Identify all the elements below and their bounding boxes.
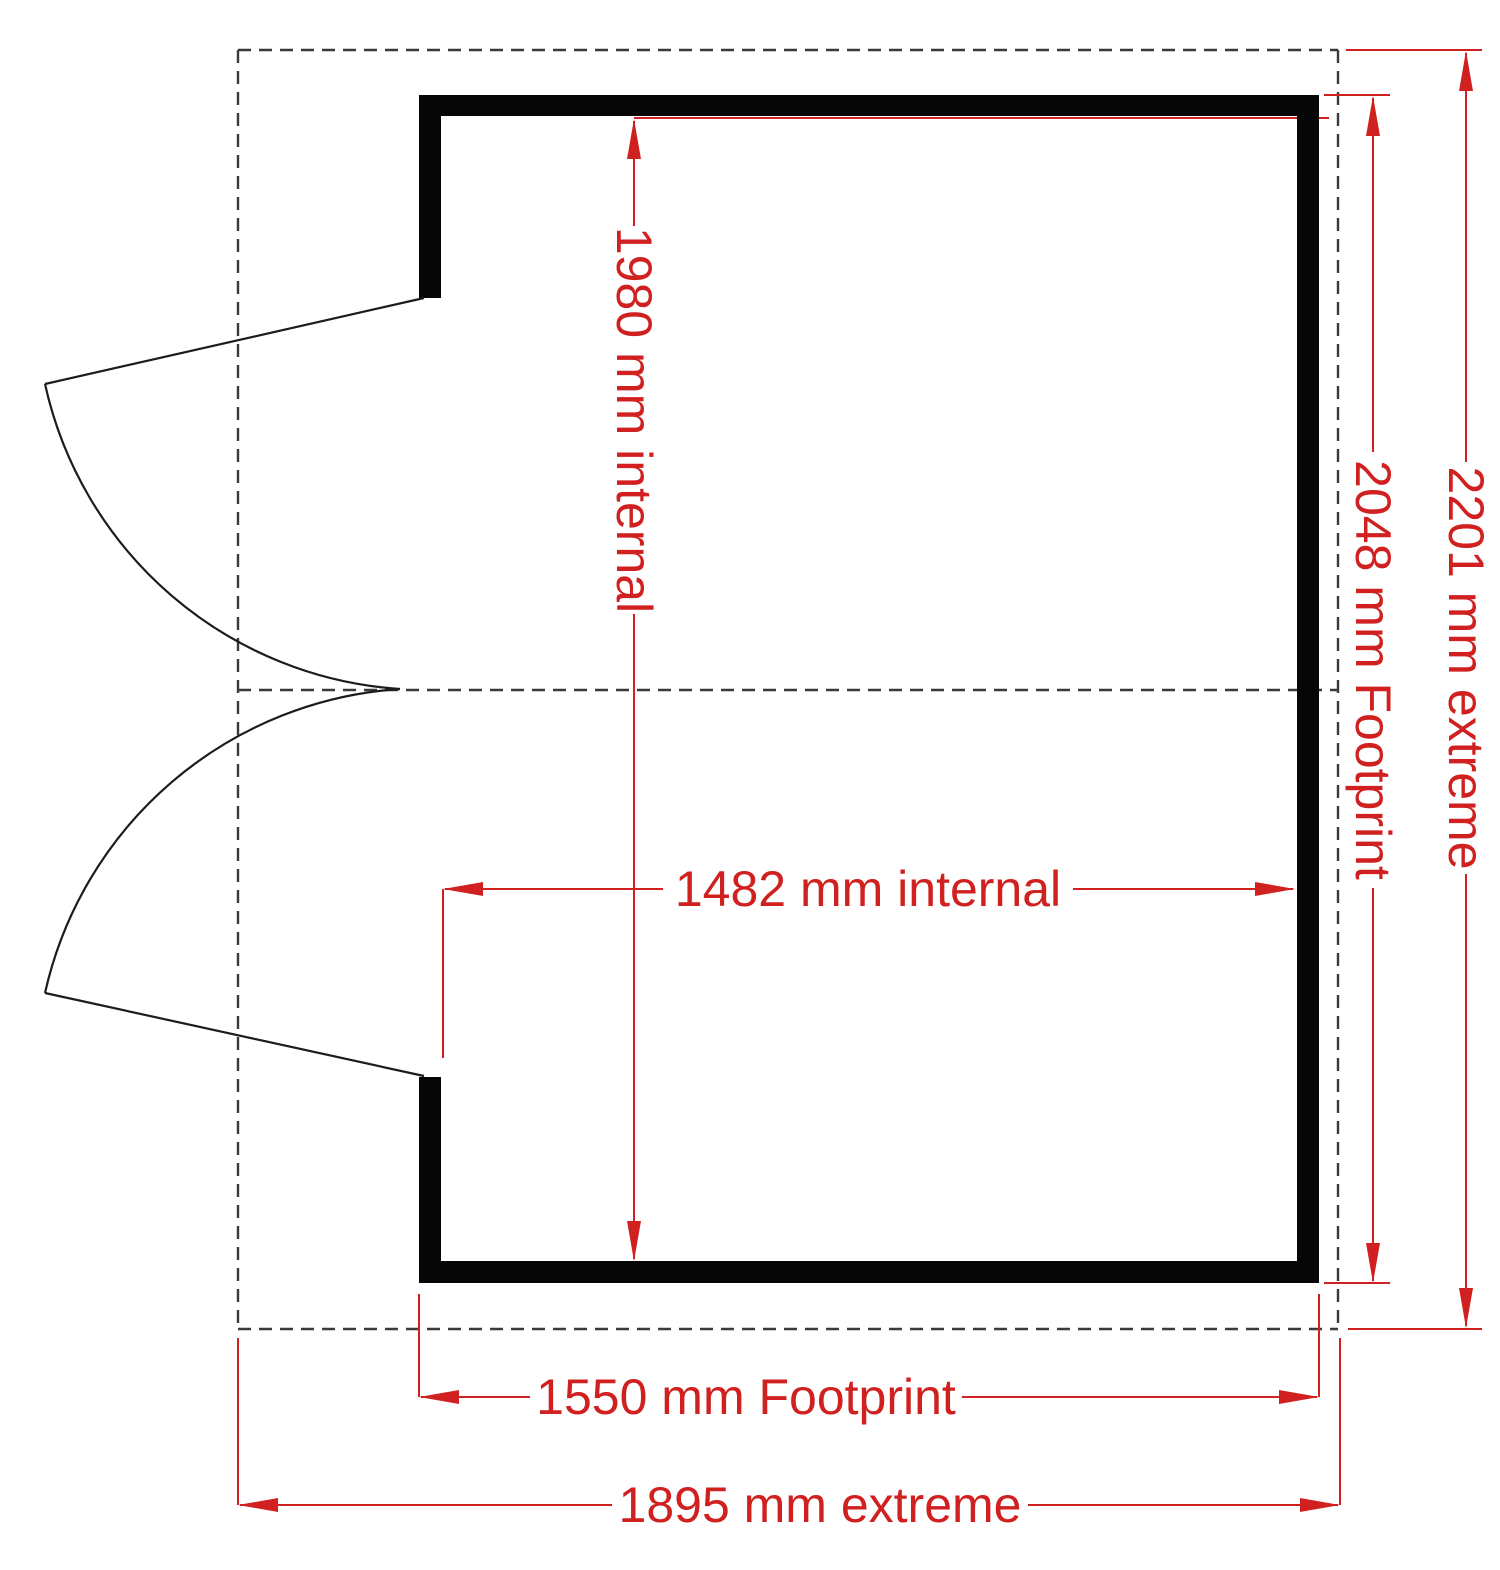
- arrow-down-icon: [627, 1221, 641, 1261]
- arrow-left-icon: [419, 1390, 459, 1404]
- arrow-up-icon: [627, 119, 641, 159]
- arrow-left-icon: [443, 882, 483, 896]
- wall-bottom: [419, 1261, 1319, 1283]
- wall-left-upper: [419, 95, 441, 298]
- wall-top: [419, 95, 1319, 116]
- wall-left-lower: [419, 1077, 441, 1283]
- door-swing-arc-upper: [45, 384, 400, 689]
- dim-label-footprint-depth: 2048 mm Footprint: [1345, 460, 1401, 880]
- dim-label-footprint-width: 1550 mm Footprint: [536, 1369, 956, 1425]
- arrow-left-icon: [238, 1498, 278, 1512]
- door-leaf-lower: [45, 993, 424, 1076]
- arrow-up-icon: [1366, 96, 1380, 136]
- dim-footprint-width: 1550 mm Footprint: [419, 1294, 1319, 1425]
- floor-plan-canvas: 1980 mm internal 1482 mm internal 2048 m…: [0, 0, 1500, 1570]
- dim-label-internal-depth: 1980 mm internal: [606, 227, 662, 613]
- double-doors: [45, 298, 424, 1076]
- door-swing-arc-lower: [45, 689, 400, 993]
- arrow-right-icon: [1300, 1498, 1340, 1512]
- dim-label-extreme-depth: 2201 mm extreme: [1438, 467, 1494, 870]
- wall-right: [1297, 95, 1319, 1283]
- dim-label-extreme-width: 1895 mm extreme: [619, 1477, 1022, 1533]
- door-leaf-upper: [45, 298, 424, 384]
- arrow-up-icon: [1459, 51, 1473, 91]
- extreme-envelope: [238, 50, 1338, 1329]
- dim-internal-depth: 1980 mm internal: [606, 118, 1329, 1261]
- arrow-right-icon: [1255, 882, 1295, 896]
- dim-label-internal-width: 1482 mm internal: [675, 861, 1061, 917]
- floor-plan-page: 1980 mm internal 1482 mm internal 2048 m…: [0, 0, 1500, 1570]
- arrow-down-icon: [1459, 1288, 1473, 1328]
- dim-internal-width: 1482 mm internal: [443, 861, 1295, 1058]
- arrow-down-icon: [1366, 1243, 1380, 1283]
- arrow-right-icon: [1279, 1390, 1319, 1404]
- dim-extreme-width: 1895 mm extreme: [238, 1338, 1340, 1533]
